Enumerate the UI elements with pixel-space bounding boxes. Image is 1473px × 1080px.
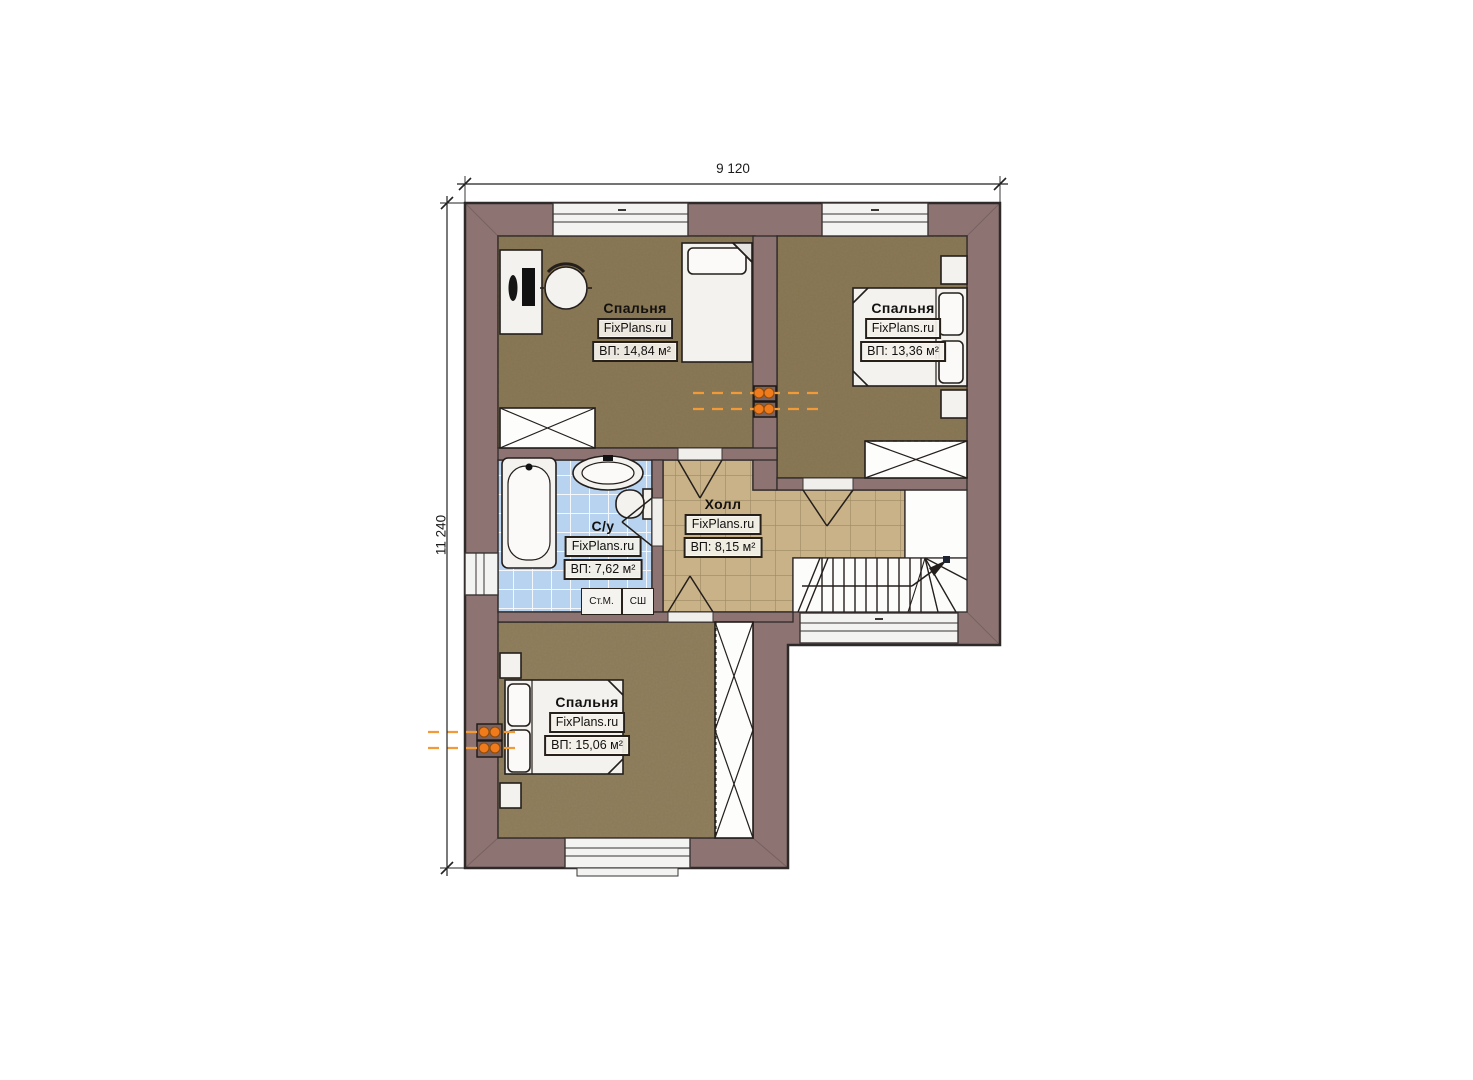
dryer-cabinet-label: СШ: [622, 588, 654, 615]
dimension-height-label: 11 240: [434, 515, 449, 555]
furniture-bedroom-top-right: [853, 256, 967, 478]
dimension-line-top: [457, 176, 1008, 203]
wardrobe: [500, 408, 595, 448]
wardrobe: [865, 441, 967, 478]
floor-plan-canvas: 9 120 11 240 Спальня FixPlans.ru ВП: 14,…: [0, 0, 1473, 1080]
nightstand: [941, 390, 967, 418]
washing-machine-label: Ст.М.: [581, 588, 622, 615]
bed-single: [682, 243, 752, 362]
sink: [573, 455, 643, 490]
wardrobe-tall: [715, 622, 753, 838]
nightstand: [500, 783, 521, 808]
window-top-left: [553, 203, 688, 236]
bathtub: [502, 458, 556, 568]
window-left: [465, 553, 498, 595]
window-stairs: [800, 613, 958, 643]
desk-lamp-icon: [509, 275, 518, 301]
monitor-icon: [522, 268, 535, 306]
bed-double: [505, 680, 623, 774]
bed-double: [853, 288, 967, 386]
stairs: [793, 556, 967, 612]
dimension-width-label: 9 120: [716, 161, 750, 176]
window-bottom: [565, 838, 690, 876]
nightstand: [941, 256, 967, 284]
nightstand: [500, 653, 521, 678]
toilet: [616, 489, 652, 519]
desk: [500, 250, 542, 334]
window-top-right: [822, 203, 928, 236]
stairs-landing: [905, 490, 967, 558]
